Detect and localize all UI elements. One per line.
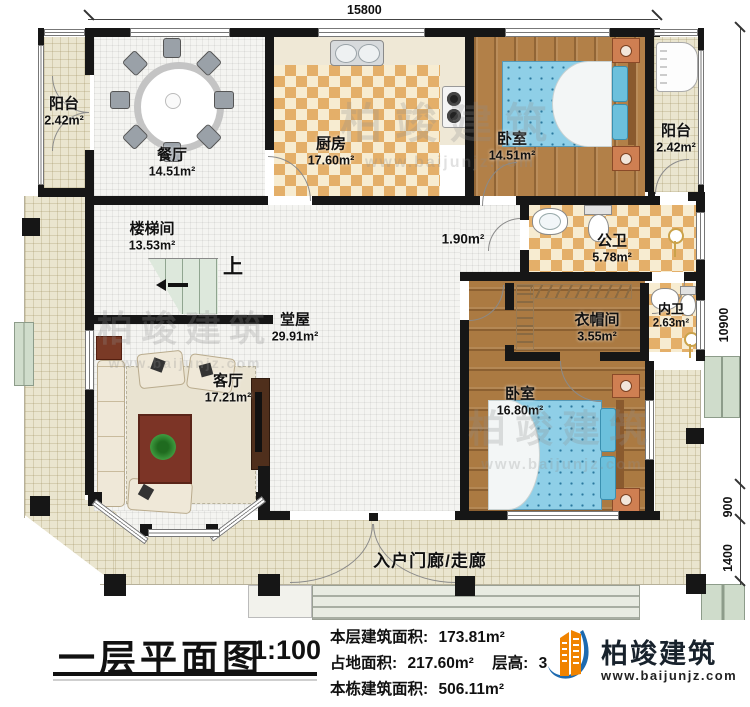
room-area: 13.53m² (129, 238, 176, 252)
entry-steps (312, 585, 640, 620)
side-table (96, 336, 122, 360)
room-area: 16.80m² (497, 403, 544, 417)
room-name: 餐厅 (149, 148, 196, 165)
wall (645, 28, 654, 192)
shower-head-icon (668, 228, 684, 244)
dining-chair (110, 91, 130, 109)
porch-column (30, 496, 50, 516)
wardrobe-rack (530, 284, 632, 299)
pillow (600, 408, 616, 452)
room-name: 公卫 (592, 234, 632, 251)
nightstand-knob (620, 153, 632, 165)
label-corridor: 1.90m² (442, 231, 485, 246)
baijun-logo-icon (545, 624, 597, 689)
porch-column (455, 576, 475, 596)
label-bedroom-top: 卧室 14.51m² (489, 132, 536, 163)
wall (85, 315, 273, 324)
porch-column (104, 574, 126, 596)
plant-icon (150, 434, 176, 460)
wall (520, 205, 529, 220)
dim-right-step: 900 (721, 494, 735, 521)
label-public-bath: 公卫 5.78m² (592, 234, 632, 265)
pillow (612, 104, 628, 140)
info-value: 506.11m² (438, 681, 504, 698)
label-private-bath: 内卫 2.63m² (653, 302, 689, 329)
nightstand-knob (620, 494, 632, 506)
wall (696, 196, 705, 212)
title-underline (53, 672, 317, 676)
wall (369, 513, 378, 521)
room-area: 3.55m² (574, 329, 619, 343)
wall (645, 361, 654, 400)
label-balcony-right: 阳台 2.42m² (656, 124, 696, 155)
info-line-1: 本层建筑面积: 173.81m² (330, 625, 505, 647)
window (38, 45, 44, 185)
wall (505, 352, 560, 361)
room-name: 入户门廊/走廊 (373, 551, 487, 570)
wall (455, 511, 507, 520)
label-cloakroom: 衣帽间 3.55m² (574, 313, 619, 344)
nightstand (612, 146, 640, 171)
wall (85, 150, 94, 330)
wall (516, 196, 660, 205)
room-area: 14.51m² (149, 164, 196, 178)
kitchen-sink (330, 40, 384, 66)
room-name: 卧室 (497, 387, 544, 404)
headboard (628, 61, 636, 145)
room-area: 2.42m² (44, 113, 84, 127)
wall (696, 350, 705, 361)
nightstand (612, 488, 640, 512)
wall (520, 272, 652, 281)
window (696, 300, 705, 350)
room-name: 内卫 (653, 302, 689, 317)
nightstand-knob (620, 45, 632, 57)
burner-icon (447, 92, 461, 106)
wall (312, 196, 470, 205)
up-label: 上 (223, 256, 243, 278)
room-name: 阳台 (44, 97, 84, 114)
nightstand (612, 38, 640, 63)
window (654, 29, 698, 36)
label-porch: 入户门廊/走廊 (373, 551, 487, 570)
bay-window-left (14, 322, 34, 386)
stove (442, 86, 467, 128)
room-name: 楼梯间 (129, 222, 176, 239)
wall (38, 188, 90, 197)
washer-controls (660, 48, 667, 84)
window (698, 50, 704, 185)
info-value: 173.81m² (438, 629, 504, 646)
pillow (612, 66, 628, 102)
dim-right-main: 10900 (717, 305, 731, 346)
dining-chair (214, 91, 234, 109)
room-area: 17.60m² (308, 153, 355, 167)
window (148, 529, 220, 537)
company-logo: 柏竣建筑 www.baijunjz.com (545, 622, 750, 702)
room-area: 1.90m² (442, 231, 485, 246)
wall (600, 352, 649, 361)
window (696, 212, 705, 260)
dim-top: 15800 (344, 3, 385, 17)
room-area: 2.63m² (653, 317, 689, 330)
wall (505, 283, 514, 310)
porch-column (686, 428, 704, 444)
info-label: 占地面积: (330, 655, 397, 672)
dim-right-porch: 1400 (721, 541, 735, 575)
veranda-left-floor (25, 196, 85, 500)
wardrobe-rack (516, 284, 534, 350)
room-area: 5.78m² (592, 250, 632, 264)
wall (85, 196, 268, 205)
window (44, 29, 85, 36)
window (507, 511, 619, 520)
dining-chair (163, 38, 181, 58)
nightstand (612, 374, 640, 398)
window (318, 28, 425, 37)
room-area: 2.42m² (656, 140, 696, 154)
label-stair-hall: 楼梯间 13.53m² (129, 222, 176, 253)
window (130, 28, 230, 37)
wall (619, 511, 660, 520)
title-block: 一层平面图 1:100 本层建筑面积: 173.81m² 占地面积: 217.6… (0, 620, 750, 707)
dimension-line (88, 19, 658, 20)
tv-icon (255, 392, 262, 452)
info-label: 层高: (492, 655, 528, 672)
porch-column (686, 574, 706, 594)
wall (640, 283, 649, 361)
floor-plan-canvas: 阳台 2.42m² 餐厅 14.51m² 厨房 17.60m² 卧室 14.51… (0, 0, 750, 620)
stair-direction-line (168, 283, 188, 287)
wall (85, 28, 94, 75)
wall (265, 28, 274, 150)
info-line-3: 本栋建筑面积: 506.11m² (330, 677, 504, 699)
room-name: 卧室 (489, 132, 536, 149)
porch-edge (700, 370, 701, 585)
info-label: 本栋建筑面积: (330, 681, 428, 698)
label-main-hall: 堂屋 29.91m² (272, 313, 319, 344)
nightstand-knob (620, 380, 632, 392)
wall (230, 28, 318, 37)
porch-edge (100, 584, 701, 585)
room-name: 阳台 (656, 124, 696, 141)
info-value: 217.60m² (407, 655, 473, 672)
dimension-line (740, 28, 741, 585)
logo-company-name: 柏竣建筑 (601, 632, 717, 671)
room-area: 14.51m² (489, 148, 536, 162)
porch-column (258, 574, 280, 596)
wall (698, 28, 704, 50)
wall (460, 272, 520, 281)
room-area: 17.21m² (205, 390, 252, 404)
bay-window-right (704, 356, 740, 418)
label-living: 客厅 17.21m² (205, 374, 252, 405)
info-label: 本层建筑面积: (330, 629, 428, 646)
plan-scale: 1:100 (252, 635, 321, 666)
room-name: 厨房 (308, 137, 355, 154)
room-area: 29.91m² (272, 329, 319, 343)
label-kitchen: 厨房 17.60m² (308, 137, 355, 168)
washing-machine (656, 42, 698, 92)
window (85, 330, 94, 390)
sink-basin (358, 44, 380, 63)
wall (460, 320, 469, 520)
stair-direction-arrow (156, 279, 166, 291)
window (505, 28, 610, 37)
room-name: 客厅 (205, 374, 252, 391)
logo-website: www.baijunjz.com (601, 668, 737, 683)
sofa-back (97, 360, 125, 507)
label-bedroom-bottom: 卧室 16.80m² (497, 387, 544, 418)
burner-icon (447, 109, 461, 123)
title-underline-light (53, 679, 317, 681)
label-balcony-left: 阳台 2.42m² (44, 97, 84, 128)
shower-hose-icon (689, 344, 691, 358)
wall (684, 272, 705, 281)
room-name: 堂屋 (272, 313, 319, 330)
dining-table-center (165, 93, 181, 109)
wall (85, 390, 94, 495)
sink-bowl (539, 213, 561, 230)
pillow (600, 456, 616, 500)
info-line-2: 占地面积: 217.60m² 层高: 3 (330, 651, 547, 673)
veranda-right-floor (655, 370, 700, 520)
shower-hose-icon (674, 241, 676, 257)
window (645, 400, 654, 460)
wall (465, 196, 480, 205)
floor-plan-page: 阳台 2.42m² 餐厅 14.51m² 厨房 17.60m² 卧室 14.51… (0, 0, 750, 707)
sink-basin (335, 44, 357, 63)
room-name: 衣帽间 (574, 313, 619, 330)
label-dining: 餐厅 14.51m² (149, 148, 196, 179)
label-up: 上 (223, 256, 243, 278)
porch-column (22, 218, 40, 236)
wall (465, 28, 474, 205)
bathroom-sink (532, 208, 568, 235)
